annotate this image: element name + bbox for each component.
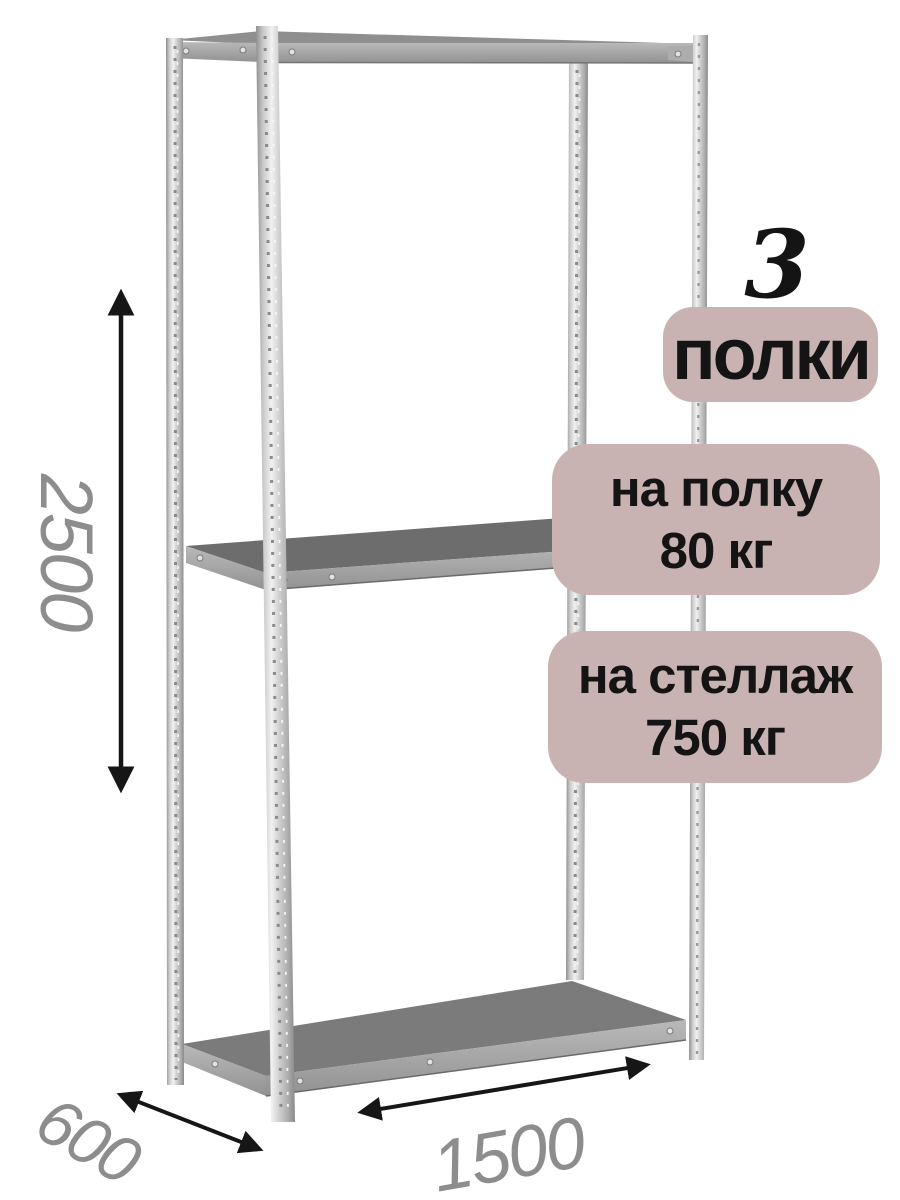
per-shelf-load-value: 80 кг xyxy=(660,520,773,582)
shelving-rack-illustration xyxy=(0,0,900,1200)
height-dimension-label: 2500 xyxy=(29,474,103,631)
product-image: 2500 600 1500 3 полки на полку 80 кг на … xyxy=(0,0,900,1200)
rack-post-back-left xyxy=(166,38,184,1085)
per-rack-load-value: 750 кг xyxy=(645,707,785,769)
rack-shelf-top xyxy=(170,31,700,63)
shelf-count-badge: полки xyxy=(663,307,878,402)
per-rack-load-label: на стеллаж xyxy=(578,645,852,707)
shelf-count-badge-label: полки xyxy=(672,319,869,391)
rack-shelf-bottom xyxy=(182,981,686,1096)
per-shelf-load-label: на полку xyxy=(610,458,822,520)
shelf-count-number: 3 xyxy=(744,218,809,312)
per-rack-load-badge: на стеллаж 750 кг xyxy=(548,631,882,783)
per-shelf-load-badge: на полку 80 кг xyxy=(552,444,880,595)
